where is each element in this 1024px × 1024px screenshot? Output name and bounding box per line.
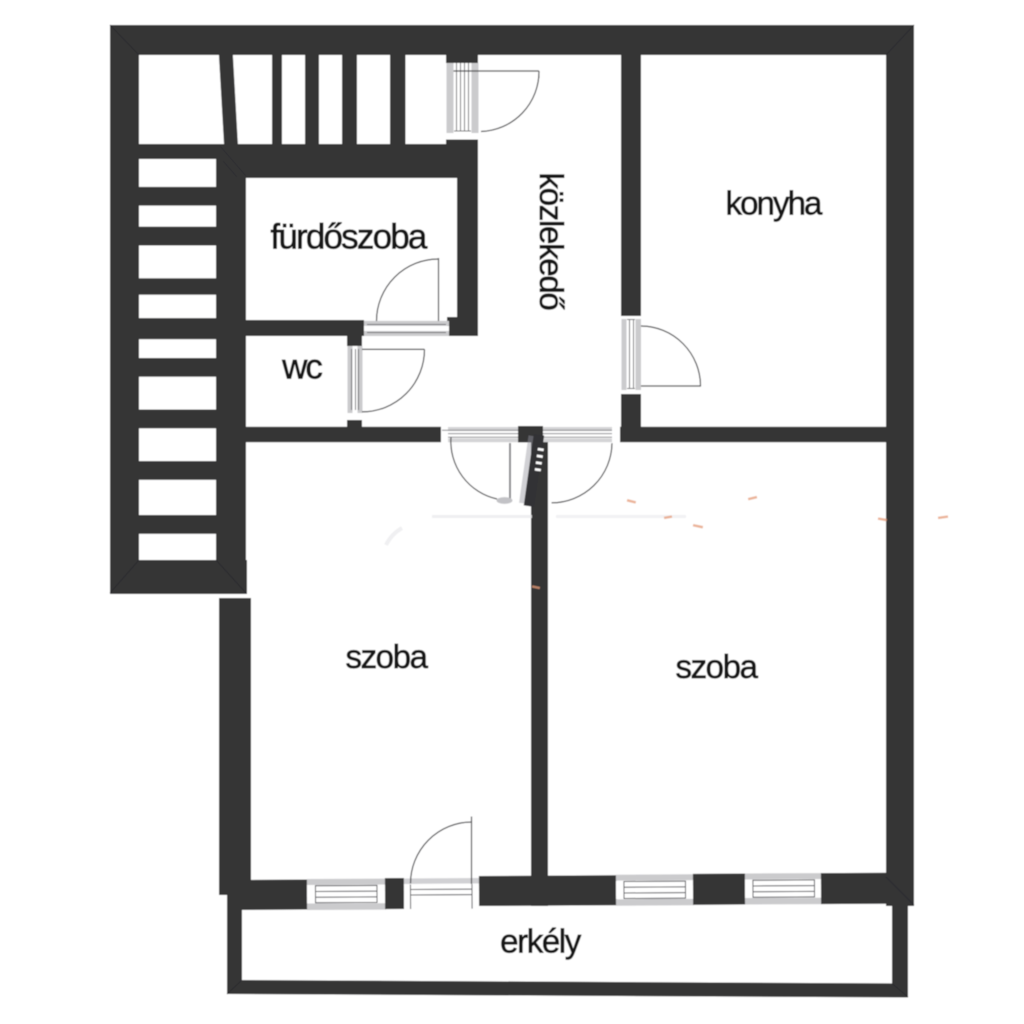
svg-text:szoba: szoba: [675, 648, 758, 685]
svg-text:közlekedő: közlekedő: [533, 173, 570, 311]
svg-text:konyha: konyha: [725, 185, 823, 222]
svg-text:fürdőszoba: fürdőszoba: [270, 217, 428, 256]
svg-text:erkély: erkély: [500, 923, 582, 960]
svg-text:wc: wc: [281, 348, 322, 387]
svg-text:szoba: szoba: [345, 638, 428, 675]
